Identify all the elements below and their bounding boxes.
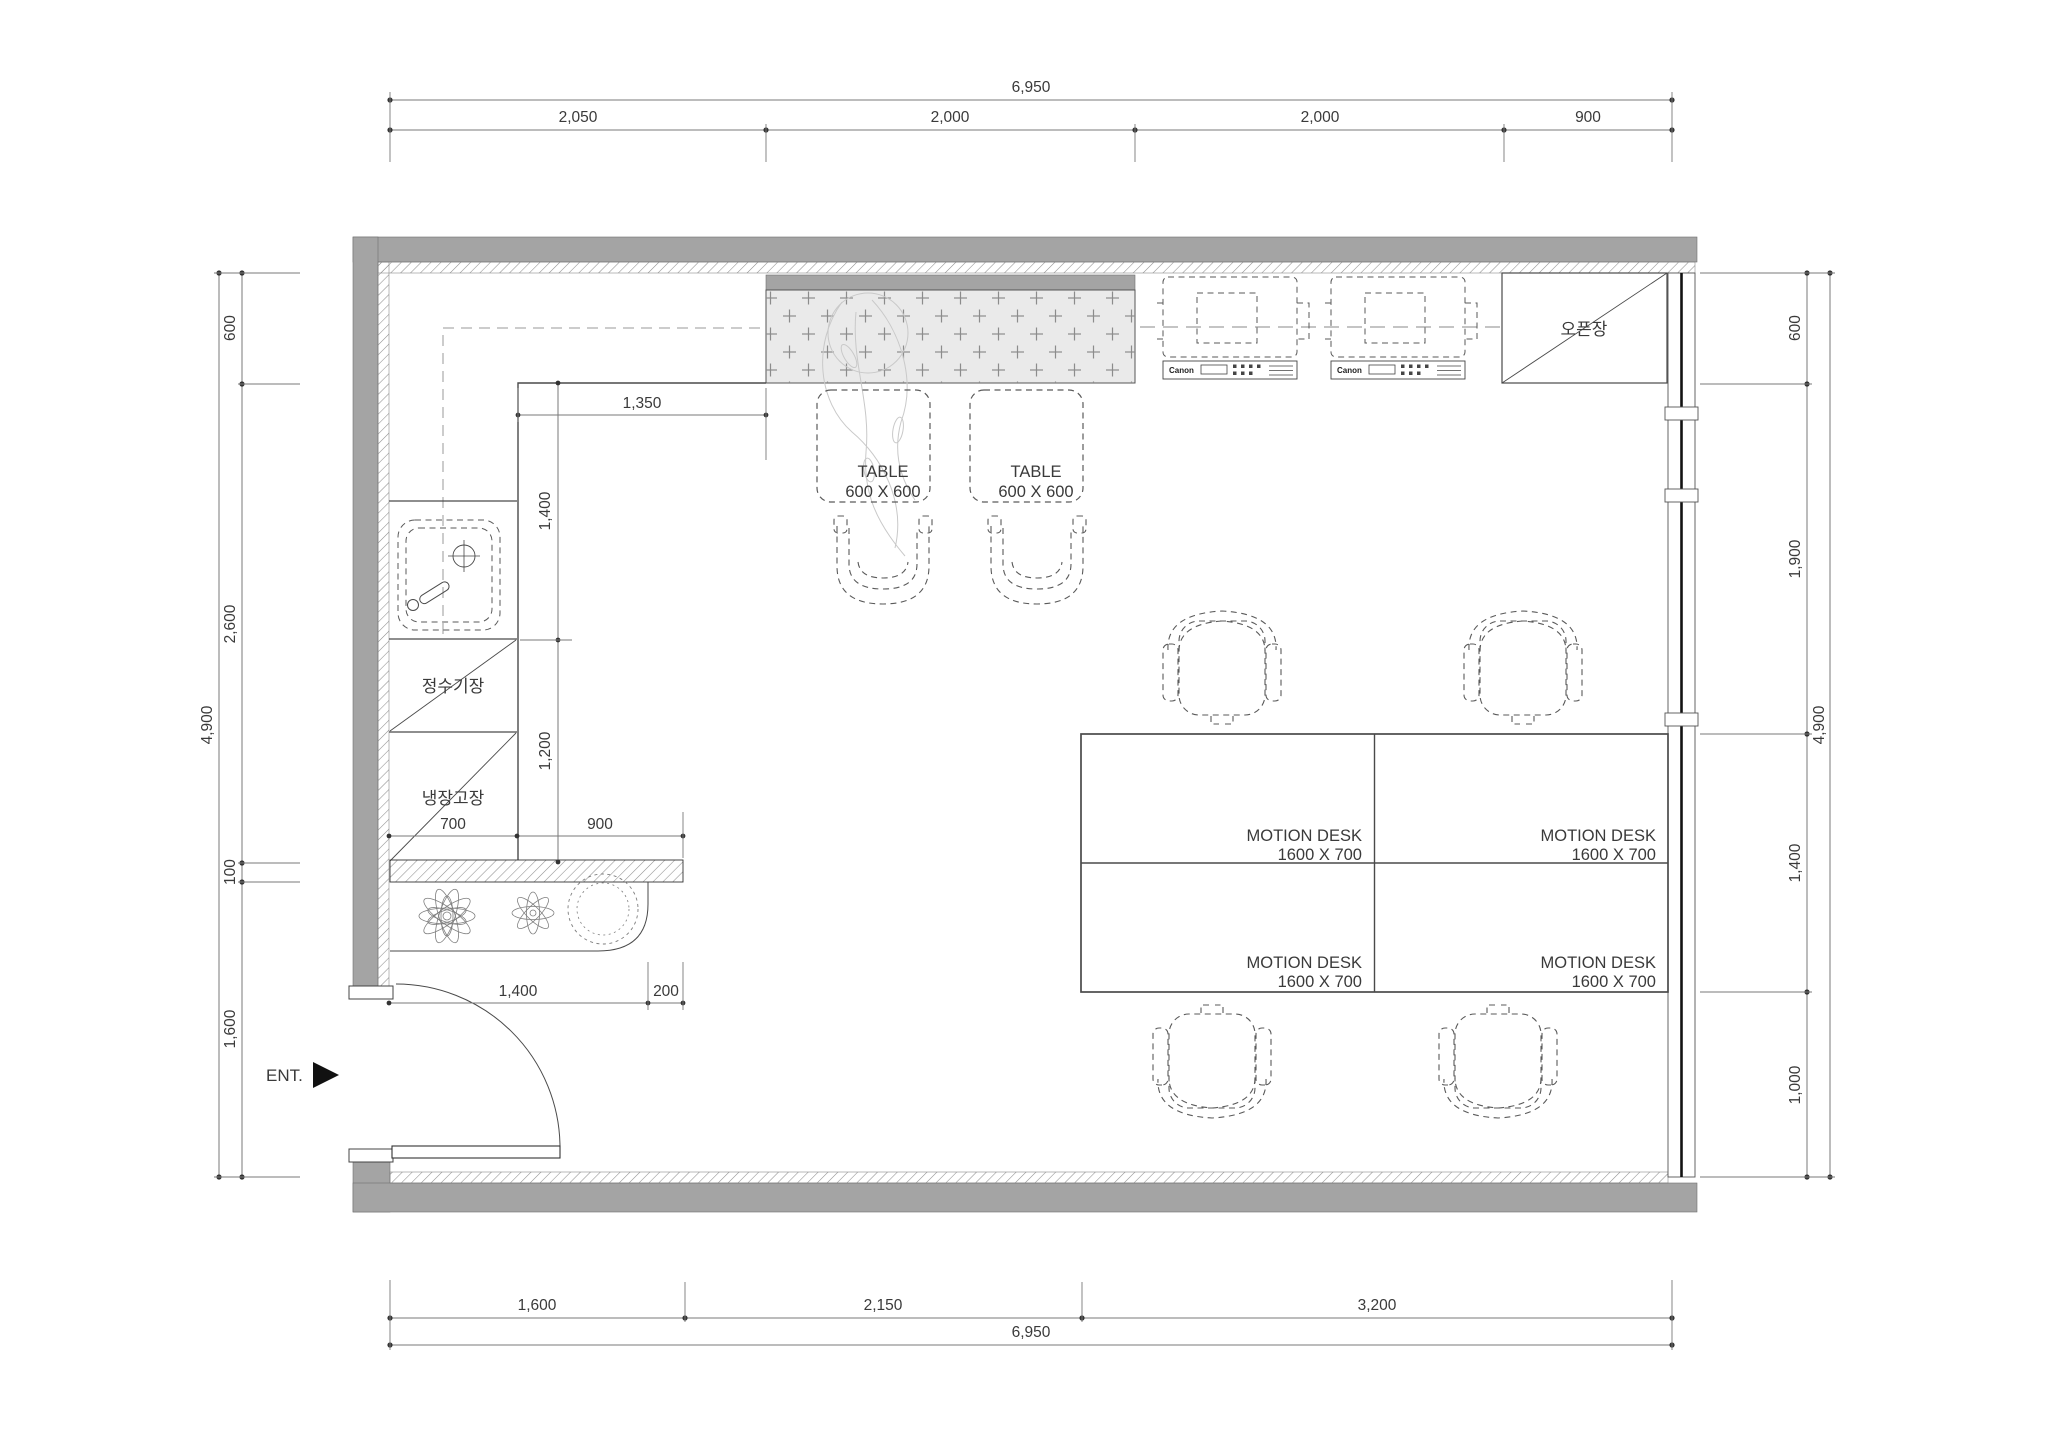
printer-1: Canon bbox=[1156, 277, 1309, 379]
cabinet-section-lines bbox=[389, 501, 517, 732]
dim-right-seg-1: 600 bbox=[1787, 315, 1804, 341]
dim-planter-ext: 200 bbox=[653, 983, 679, 1000]
table-1-label: TABLE bbox=[857, 463, 908, 481]
table-2-label: TABLE bbox=[1010, 463, 1061, 481]
dim-right-seg-3: 1,400 bbox=[1787, 843, 1804, 882]
top-dimensions: 6,950 2,050 2,000 2,000 900 bbox=[387, 79, 1674, 162]
plant-1 bbox=[419, 887, 475, 945]
dim-left-seg-4: 1,600 bbox=[222, 1009, 239, 1048]
entrance-door bbox=[392, 984, 560, 1158]
open-cabinet-label: 오픈장 bbox=[1561, 320, 1608, 339]
dim-bottom-seg-1: 1,600 bbox=[518, 1297, 557, 1314]
door-opening-sill-bottom bbox=[349, 1149, 393, 1162]
dim-left-seg-3: 100 bbox=[222, 859, 239, 885]
window-wall bbox=[1665, 273, 1698, 1177]
window-mullion bbox=[1665, 407, 1698, 420]
dim-right-overall: 4,900 bbox=[1811, 705, 1828, 744]
tile-counter-pattern bbox=[766, 290, 1135, 383]
wall-cabinet-band bbox=[766, 275, 1135, 290]
table-1-size: 600 X 600 bbox=[845, 483, 920, 501]
counter-top-hatch bbox=[390, 860, 683, 882]
bottom-wall bbox=[353, 1183, 1697, 1212]
desk-1-label: MOTION DESK bbox=[1246, 827, 1362, 845]
left-wall-finish-hatch bbox=[378, 262, 389, 996]
dim-left-seg-1: 600 bbox=[222, 315, 239, 341]
left-wall bbox=[353, 237, 378, 990]
dining-chair-1 bbox=[834, 516, 932, 604]
window-mullion bbox=[1665, 489, 1698, 502]
office-chair-1 bbox=[1163, 611, 1281, 724]
dim-top-seg-1: 2,050 bbox=[559, 109, 598, 126]
right-dimensions: 600 1,900 1,400 1,000 4,900 bbox=[1700, 270, 1835, 1179]
dim-lower-counter: 1,200 bbox=[537, 731, 554, 770]
motion-desk-cluster: MOTION DESK 1600 X 700 MOTION DESK 1600 … bbox=[1081, 734, 1668, 992]
dim-planter-width: 1,400 bbox=[499, 983, 538, 1000]
bottom-wall-finish-hatch bbox=[390, 1172, 1668, 1183]
entrance-arrow-icon bbox=[313, 1062, 339, 1088]
dim-top-seg-4: 900 bbox=[1575, 109, 1601, 126]
dim-left-seg-2: 2,600 bbox=[222, 604, 239, 643]
dim-right-seg-4: 1,000 bbox=[1787, 1065, 1804, 1104]
floor-plan-drawing: 정수기장 냉장고장 bbox=[0, 0, 2048, 1448]
dim-counter-depth: 1,400 bbox=[537, 491, 554, 530]
faucet-icon bbox=[408, 580, 451, 610]
desk-2-label: MOTION DESK bbox=[1540, 827, 1656, 845]
dining-chair-2 bbox=[988, 516, 1086, 604]
office-chair-2 bbox=[1464, 611, 1582, 724]
top-wall-finish-hatch bbox=[378, 262, 1695, 273]
dim-top-overall: 6,950 bbox=[1012, 79, 1051, 96]
plant-2 bbox=[512, 892, 554, 934]
dim-bottom-seg-2: 2,150 bbox=[864, 1297, 903, 1314]
dim-cabinet-width: 700 bbox=[440, 816, 466, 833]
floor-plan-canvas: 정수기장 냉장고장 bbox=[0, 0, 2048, 1448]
plant-3 bbox=[568, 874, 638, 944]
kitchen-zone: 정수기장 냉장고장 bbox=[389, 275, 1135, 951]
sink bbox=[398, 520, 500, 630]
desk-3-size: 1600 X 700 bbox=[1278, 973, 1362, 991]
refrigerator-cabinet-label: 냉장고장 bbox=[422, 789, 485, 808]
cafe-tables: TABLE 600 X 600 TABLE 600 X 600 bbox=[817, 390, 1086, 604]
dim-counter-ext: 900 bbox=[587, 816, 613, 833]
window-mullion bbox=[1665, 713, 1698, 726]
top-wall bbox=[353, 237, 1697, 262]
counter-front-edge bbox=[518, 383, 766, 860]
upper-cabinet-guide-line bbox=[443, 328, 766, 634]
desk-2-size: 1600 X 700 bbox=[1572, 846, 1656, 864]
planter bbox=[390, 882, 648, 951]
door-opening-sill-top bbox=[349, 986, 393, 999]
door-leaf bbox=[392, 1146, 560, 1158]
office-chair-4 bbox=[1439, 1005, 1557, 1118]
dim-left-overall: 4,900 bbox=[199, 705, 216, 744]
open-cabinet: 오픈장 bbox=[1502, 273, 1667, 383]
entrance-marker: ENT. bbox=[266, 1062, 339, 1088]
dim-bottom-seg-3: 3,200 bbox=[1358, 1297, 1397, 1314]
printer-1-brand: Canon bbox=[1169, 366, 1194, 375]
dim-counter-run: 1,350 bbox=[623, 395, 662, 412]
office-chair-3 bbox=[1153, 1005, 1271, 1118]
bottom-dimensions: 1,600 2,150 3,200 6,950 bbox=[387, 1280, 1674, 1350]
desk-1-size: 1600 X 700 bbox=[1278, 846, 1362, 864]
desk-4-size: 1600 X 700 bbox=[1572, 973, 1656, 991]
table-2-size: 600 X 600 bbox=[998, 483, 1073, 501]
printer-2-brand: Canon bbox=[1337, 366, 1362, 375]
printer-2-control-panel: Canon bbox=[1331, 361, 1465, 379]
desk-4-label: MOTION DESK bbox=[1540, 954, 1656, 972]
left-dimensions: 600 2,600 100 1,600 4,900 bbox=[199, 270, 300, 1179]
printer-1-control-panel: Canon bbox=[1163, 361, 1297, 379]
entrance-label: ENT. bbox=[266, 1066, 303, 1085]
water-purifier-cabinet-label: 정수기장 bbox=[422, 677, 485, 696]
dim-right-seg-2: 1,900 bbox=[1787, 539, 1804, 578]
printer-2: Canon bbox=[1324, 277, 1477, 379]
dim-bottom-overall: 6,950 bbox=[1012, 1324, 1051, 1341]
dim-top-seg-2: 2,000 bbox=[931, 109, 970, 126]
door-swing-arc bbox=[396, 984, 560, 1146]
dim-top-seg-3: 2,000 bbox=[1301, 109, 1340, 126]
desk-3-label: MOTION DESK bbox=[1246, 954, 1362, 972]
